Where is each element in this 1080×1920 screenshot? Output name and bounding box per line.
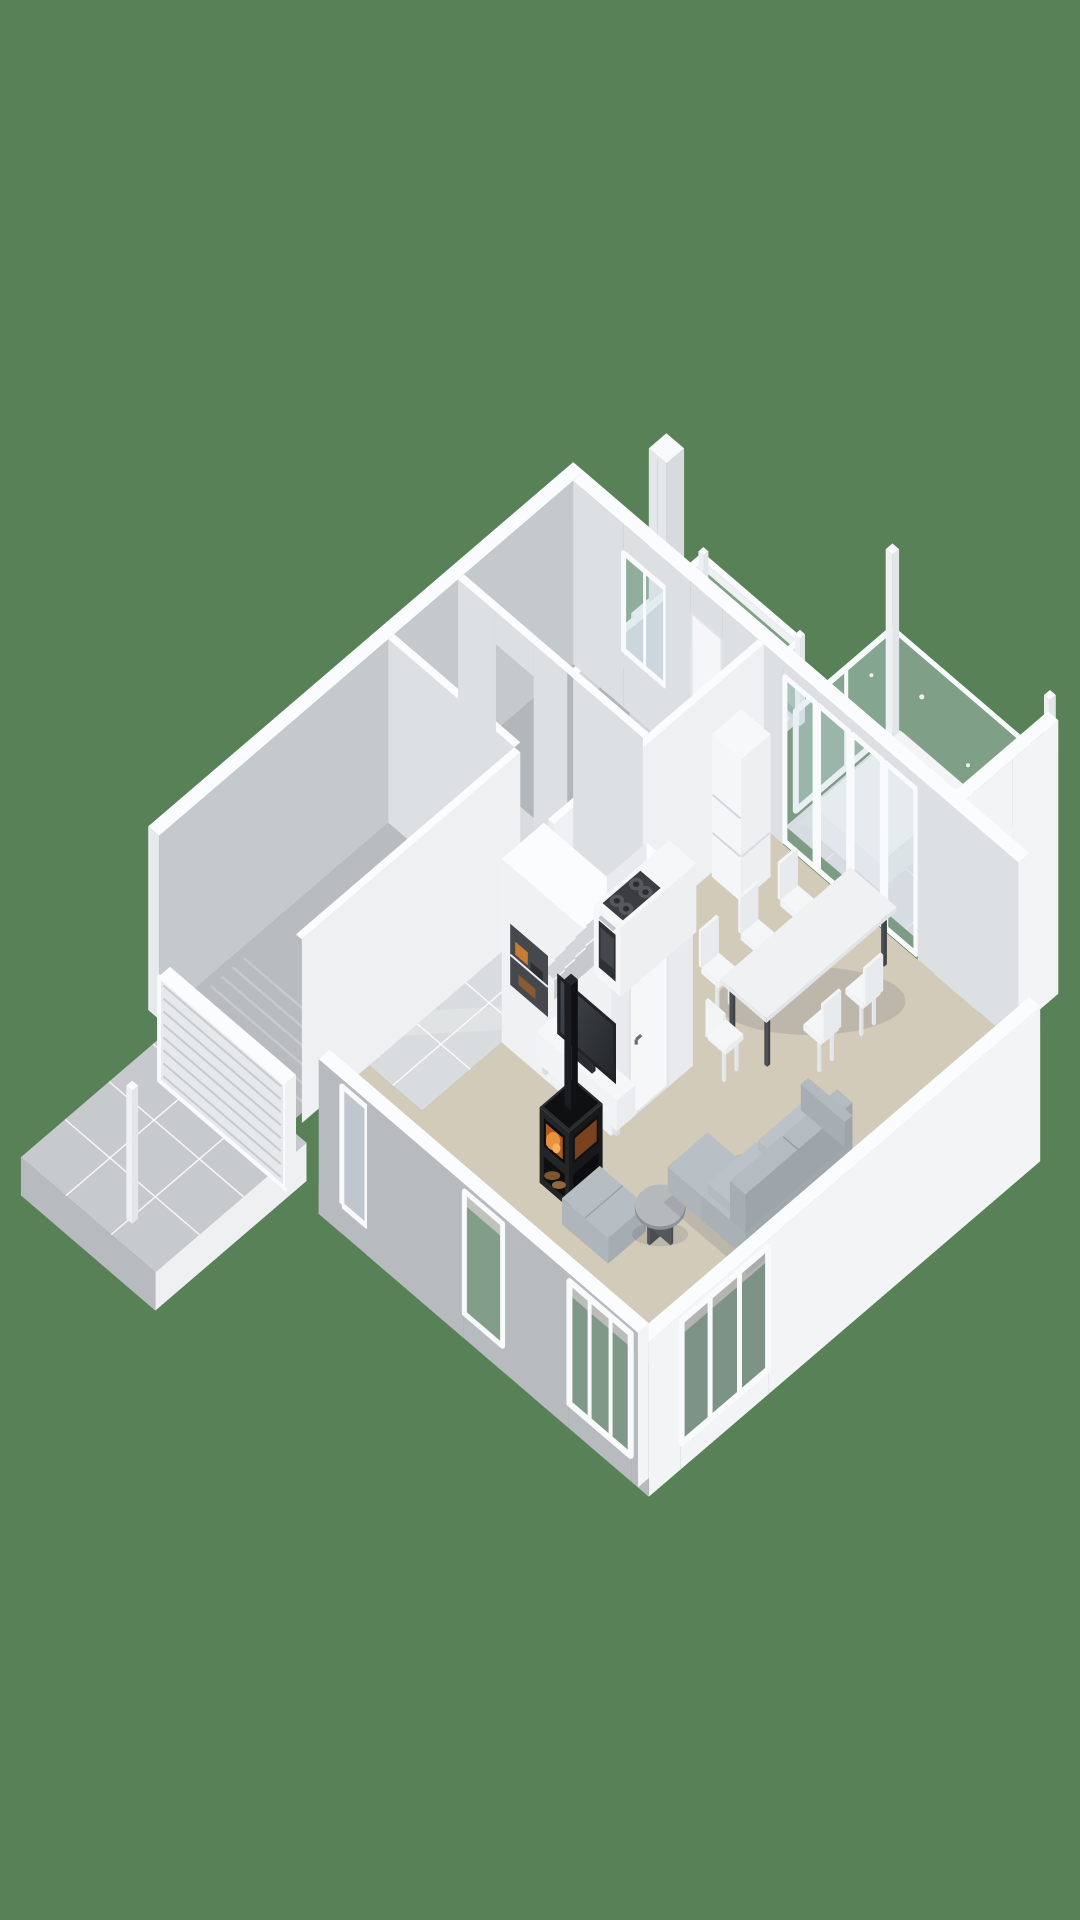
fridge bbox=[712, 709, 771, 902]
sliding-door-panel bbox=[819, 705, 849, 896]
sliding-door-panel bbox=[785, 677, 815, 868]
sliding-door-panel bbox=[886, 763, 916, 954]
floorplan-stage bbox=[0, 0, 1080, 1920]
floorplan-svg bbox=[0, 0, 1080, 1920]
